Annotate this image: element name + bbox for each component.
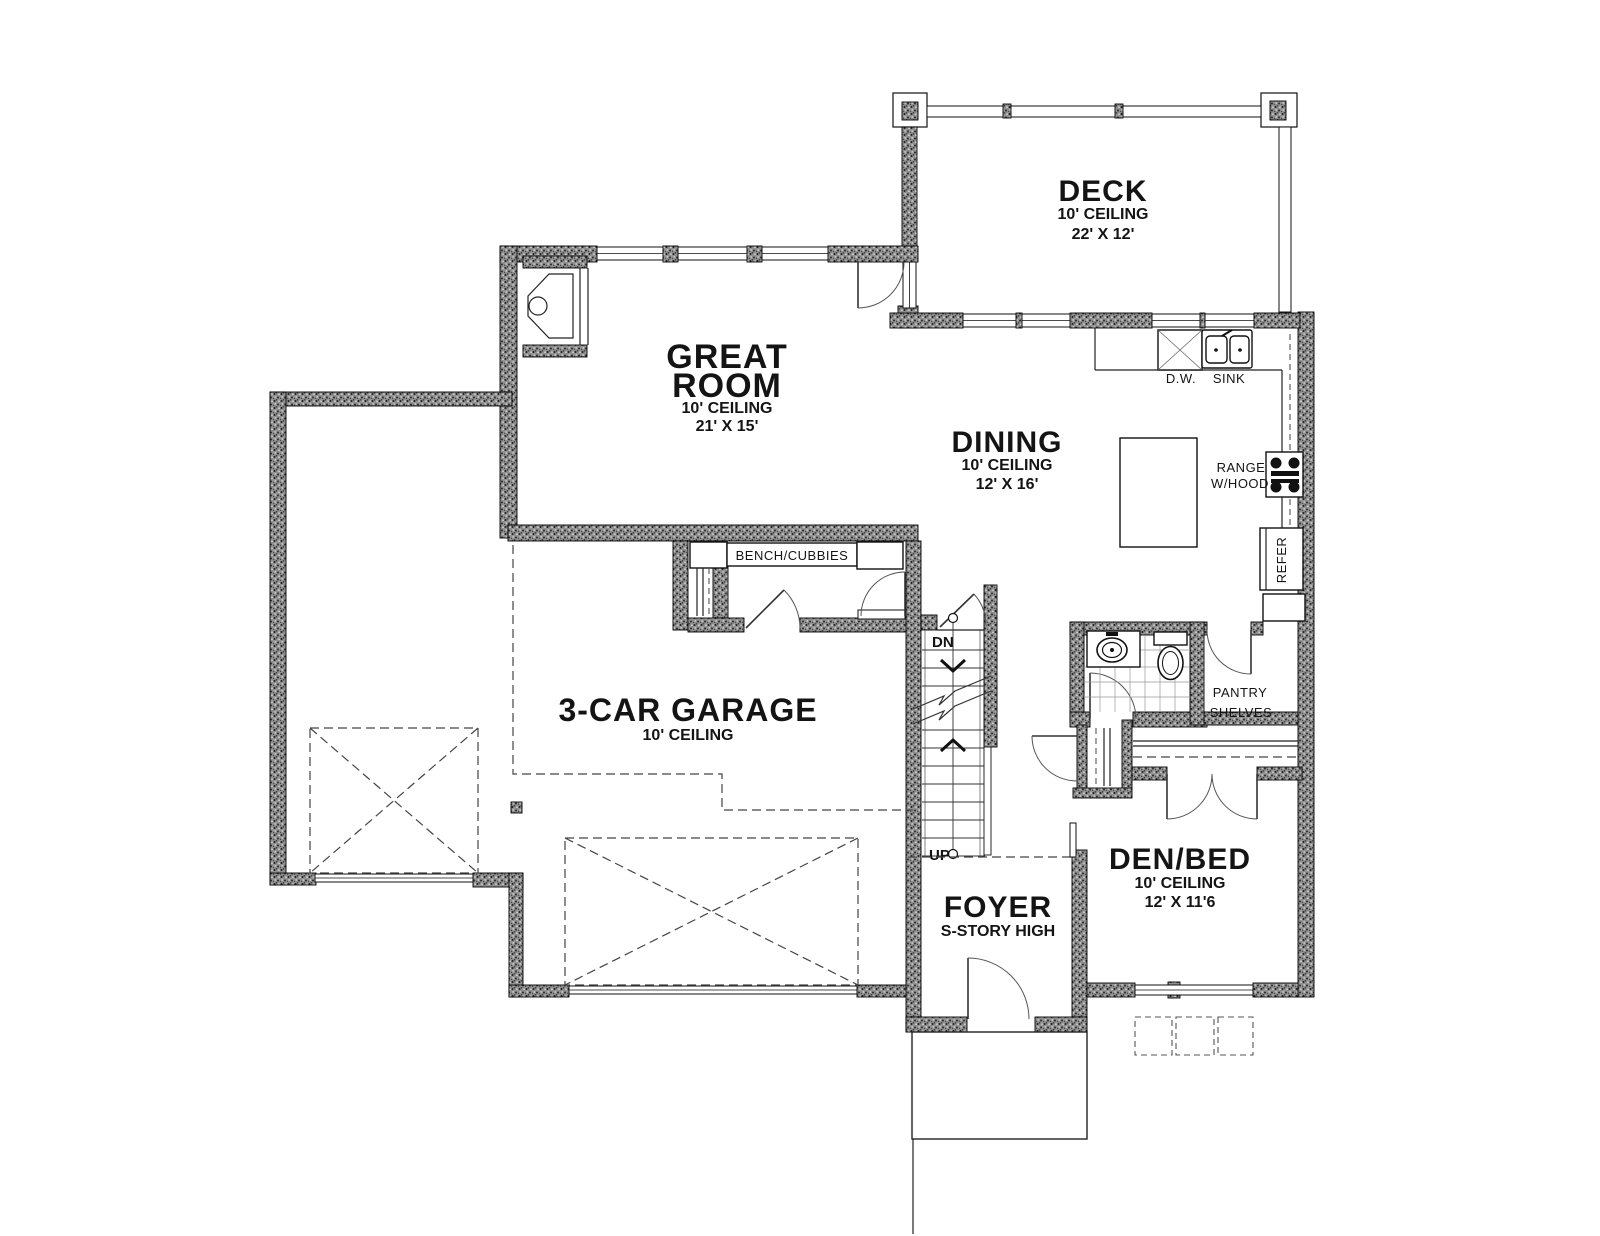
front-steps: [1135, 1017, 1253, 1055]
kitchen-window: [1205, 314, 1254, 327]
deck-door-opening: [903, 262, 916, 308]
den-size: 12' X 11'6: [1145, 894, 1216, 911]
range-label-line2: W/HOOD: [1211, 476, 1269, 491]
pantry-label-line2: SHELVES: [1210, 705, 1273, 720]
dishwasher-fixture: [1158, 330, 1202, 370]
floor-plan-canvas: DN UP: [0, 0, 1600, 1236]
den-ceiling: 10' CEILING: [1135, 875, 1226, 892]
dining-ceiling: 10' CEILING: [962, 457, 1053, 474]
kitchen: D.W. SINK RANGE W/HOOD REFER: [1095, 328, 1303, 590]
front-door: [968, 958, 1029, 1019]
mudroom-cased-opening: [858, 610, 905, 619]
bench-label: BENCH/CUBBIES: [736, 548, 849, 563]
great-room-window: [597, 247, 663, 260]
mudroom-left-door: [746, 590, 800, 628]
den-name: DEN/BED: [1109, 843, 1251, 876]
deck-left-wall: [902, 127, 917, 262]
great-room-window: [762, 247, 828, 260]
great-room-ceiling: 10' CEILING: [682, 400, 773, 417]
pantry-door: [1207, 630, 1251, 674]
garage-door-sill-main: [569, 986, 857, 994]
garage-name: 3-CAR GARAGE: [558, 692, 817, 728]
powder-room-door: [1090, 673, 1136, 719]
den-french-door-right: [1212, 774, 1257, 819]
pantry-label-line1: PANTRY: [1213, 685, 1268, 700]
vanity-sink-fixture: [1087, 631, 1140, 667]
den-label: DEN/BED 10' CEILING 12' X 11'6: [1109, 843, 1251, 911]
dining-label: DINING 10' CEILING 12' X 16': [952, 426, 1063, 493]
hall-closet: [1096, 728, 1110, 786]
stairs-down-label: DN: [932, 634, 954, 651]
range-fixture: [1266, 452, 1303, 497]
pantry-shelf: [1263, 594, 1305, 621]
dishwasher-label: D.W.: [1166, 371, 1196, 386]
deck-rail-right: [1279, 127, 1291, 312]
sink-fixture: [1202, 330, 1252, 368]
broom-closet-shelves: [697, 568, 709, 616]
garage-details: [310, 545, 913, 985]
dining-window: [963, 314, 1016, 327]
great-room-size: 21' X 15': [696, 418, 759, 435]
deck-door: [858, 262, 904, 308]
foyer-note: S-STORY HIGH: [941, 923, 1055, 940]
garage-door-left-panel: [310, 728, 478, 873]
den-french-door-left: [1167, 774, 1212, 819]
sink-label: SINK: [1213, 371, 1245, 386]
foyer-label: FOYER S-STORY HIGH: [941, 891, 1055, 940]
foyer-name: FOYER: [944, 891, 1052, 924]
deck-label: DECK 10' CEILING 22' X 12': [1058, 175, 1149, 243]
deck-name: DECK: [1058, 175, 1147, 208]
foyer-den-partition: [1070, 823, 1076, 857]
hall-door: [1032, 736, 1077, 781]
garage-post: [511, 802, 522, 813]
stair-landing-door: [940, 594, 986, 627]
dining-window: [1022, 314, 1070, 327]
garage-door-sill-left: [315, 874, 473, 882]
stair-railing: [984, 747, 991, 855]
garage-label: 3-CAR GARAGE 10' CEILING: [558, 692, 817, 744]
great-room-window: [678, 247, 747, 260]
kitchen-window: [1152, 314, 1200, 327]
powder-room: [1085, 631, 1190, 712]
deck-ceiling: 10' CEILING: [1058, 206, 1149, 223]
kitchen-island: [1120, 438, 1197, 547]
deck-rail-top: [927, 106, 1261, 117]
cubby-box: [857, 542, 903, 569]
den-window: [1135, 985, 1253, 995]
deck-size: 22' X 12': [1072, 226, 1135, 243]
dining-name: DINING: [952, 426, 1063, 459]
front-porch: [912, 1032, 1087, 1139]
toilet-fixture: [1154, 632, 1187, 680]
cubby-box: [690, 542, 727, 568]
mudroom-right-door: [861, 572, 905, 616]
fireplace: [523, 256, 588, 357]
stairs-up-label: UP: [929, 847, 950, 864]
range-label-line1: RANGE: [1217, 460, 1266, 475]
great-room-label: GREAT ROOM 10' CEILING 21' X 15': [666, 338, 787, 435]
staircase: DN UP: [913, 614, 991, 865]
garage-door-main-panel: [565, 838, 858, 985]
pantry: PANTRY SHELVES: [1210, 594, 1305, 720]
floor-plan-drawing: DN UP: [0, 0, 1600, 1236]
garage-ceiling: 10' CEILING: [643, 727, 734, 744]
dining-size: 12' X 16': [976, 476, 1039, 493]
refrigerator-label: REFER: [1274, 537, 1289, 584]
